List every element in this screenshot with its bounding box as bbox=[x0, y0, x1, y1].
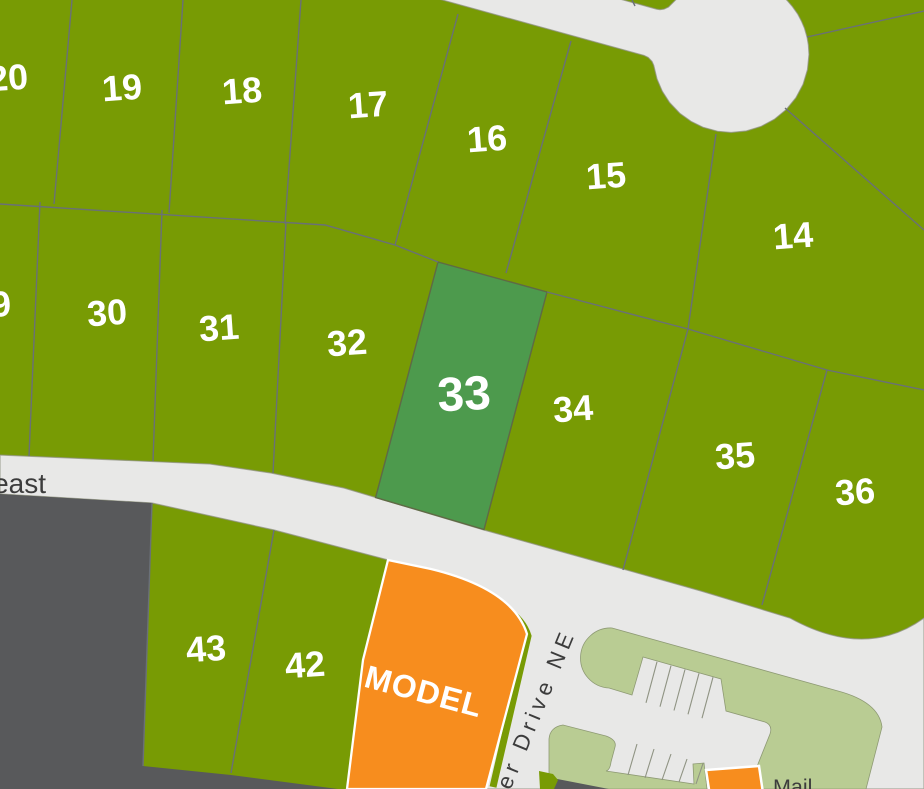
svg-text:15: 15 bbox=[585, 154, 628, 198]
svg-text:east: east bbox=[0, 468, 46, 499]
svg-text:36: 36 bbox=[834, 470, 877, 514]
svg-text:35: 35 bbox=[714, 434, 757, 478]
svg-text:14: 14 bbox=[772, 214, 815, 258]
svg-text:32: 32 bbox=[326, 321, 369, 365]
svg-text:34: 34 bbox=[552, 387, 595, 431]
svg-text:20: 20 bbox=[0, 56, 29, 100]
svg-text:17: 17 bbox=[347, 83, 390, 127]
svg-text:33: 33 bbox=[436, 367, 492, 423]
svg-text:31: 31 bbox=[198, 306, 241, 350]
svg-text:19: 19 bbox=[101, 66, 144, 110]
svg-text:42: 42 bbox=[284, 643, 327, 687]
svg-text:Mail: Mail bbox=[773, 775, 812, 789]
svg-text:30: 30 bbox=[86, 291, 129, 335]
svg-text:43: 43 bbox=[185, 627, 228, 671]
svg-text:18: 18 bbox=[221, 69, 264, 113]
svg-text:16: 16 bbox=[466, 117, 509, 161]
